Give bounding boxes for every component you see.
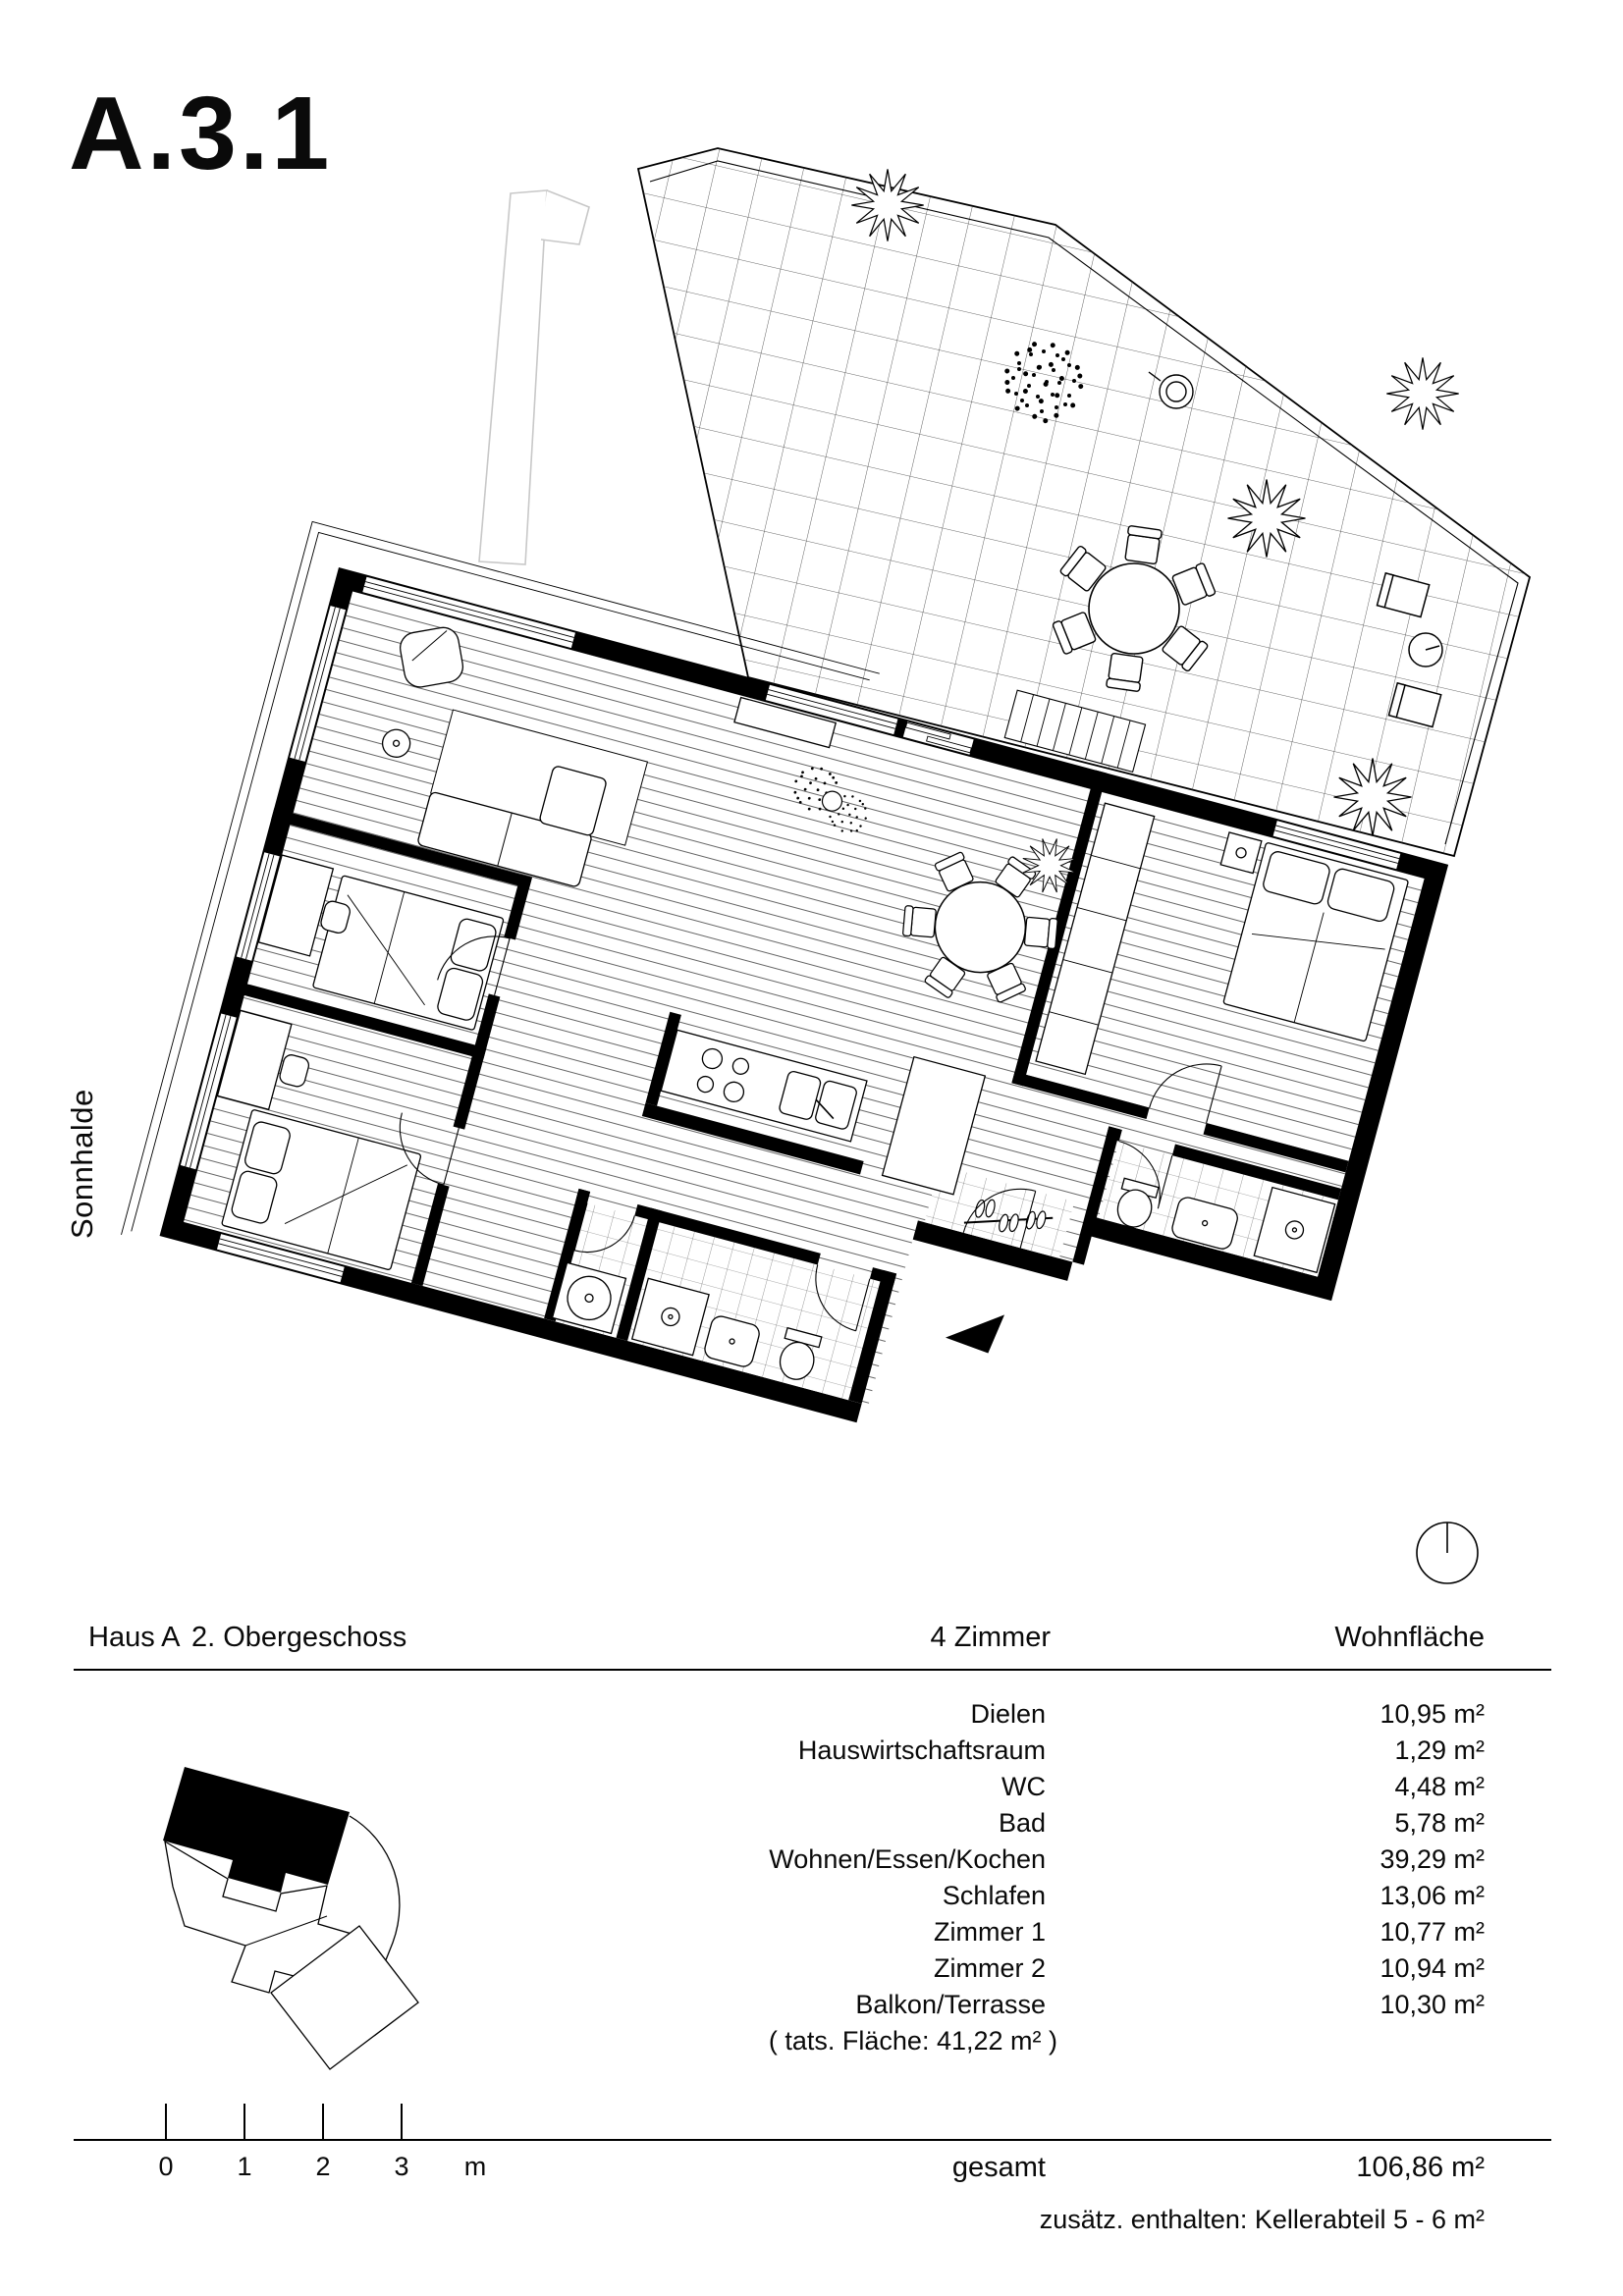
plan-sheet: A.3.1 (0, 0, 1623, 2296)
floor-plan (0, 0, 1623, 1512)
scale-tick (401, 2104, 403, 2139)
total-value: 106,86 m² (1356, 2152, 1485, 2184)
row-label: Dielen (970, 1698, 1046, 1731)
row-value: 10,77 m² (1380, 1916, 1485, 1949)
table-row: Dielen 10,95 m² (74, 1698, 1488, 1731)
row-label: Zimmer 2 (934, 1952, 1046, 1985)
scale-tick (243, 2104, 245, 2139)
table-row: WC 4,48 m² (74, 1771, 1488, 1803)
plant-icon (1386, 357, 1458, 429)
row-label: Zimmer 1 (934, 1916, 1046, 1949)
scale-bar-line (74, 2139, 1551, 2141)
row-value: 5,78 m² (1394, 1807, 1485, 1840)
table-row: Hauswirtschaftsraum 1,29 m² (74, 1735, 1488, 1767)
shaft-outline (479, 190, 589, 564)
row-label: WC (1001, 1771, 1046, 1803)
table-row: Zimmer 2 10,94 m² (74, 1952, 1488, 1985)
row-value: 10,30 m² (1380, 1989, 1485, 2021)
row-value: 13,06 m² (1380, 1880, 1485, 1912)
row-value: 10,95 m² (1380, 1698, 1485, 1731)
row-label: Bad (999, 1807, 1046, 1840)
table-row: Wohnen/Essen/Kochen 39,29 m² (74, 1843, 1488, 1876)
table-header: Haus A 2. Obergeschoss 4 Zimmer Wohnfläc… (74, 1622, 1488, 1657)
scale-tick (165, 2104, 167, 2139)
row-value: 10,94 m² (1380, 1952, 1485, 1985)
entry-arrow-icon (945, 1302, 1004, 1355)
total-row: gesamt 106,86 m² (74, 2152, 1488, 2184)
row-label: Wohnen/Essen/Kochen (769, 1843, 1046, 1876)
floor-label: 2. Obergeschoss (191, 1622, 406, 1654)
table-row: Schlafen 13,06 m² (74, 1880, 1488, 1912)
total-label: gesamt (952, 2152, 1046, 2184)
row-value: 4,48 m² (1394, 1771, 1485, 1803)
table-note-row: ( tats. Fläche: 41,22 m² ) (74, 2025, 1488, 2057)
row-label: Hauswirtschaftsraum (798, 1735, 1046, 1767)
area-header-label: Wohnfläche (1334, 1622, 1485, 1654)
table-row: Zimmer 1 10,77 m² (74, 1916, 1488, 1949)
header-rule (74, 1669, 1551, 1671)
tats-flaeche-note: ( tats. Fläche: 41,22 m² ) (769, 2025, 1057, 2057)
row-label: Balkon/Terrasse (855, 1989, 1046, 2021)
basement-note: zusätz. enthalten: Kellerabteil 5 - 6 m² (74, 2205, 1488, 2235)
table-row: Bad 5,78 m² (74, 1807, 1488, 1840)
scale-tick (322, 2104, 324, 2139)
row-label: Schlafen (943, 1880, 1046, 1912)
street-label: Sonnhalde (65, 1089, 100, 1239)
table-row: Balkon/Terrasse 10,30 m² (74, 1989, 1488, 2021)
row-value: 1,29 m² (1394, 1735, 1485, 1767)
rooms-label: 4 Zimmer (931, 1622, 1051, 1654)
north-indicator-icon (1412, 1514, 1483, 1586)
row-value: 39,29 m² (1380, 1843, 1485, 1876)
house-label: Haus A (88, 1622, 181, 1654)
